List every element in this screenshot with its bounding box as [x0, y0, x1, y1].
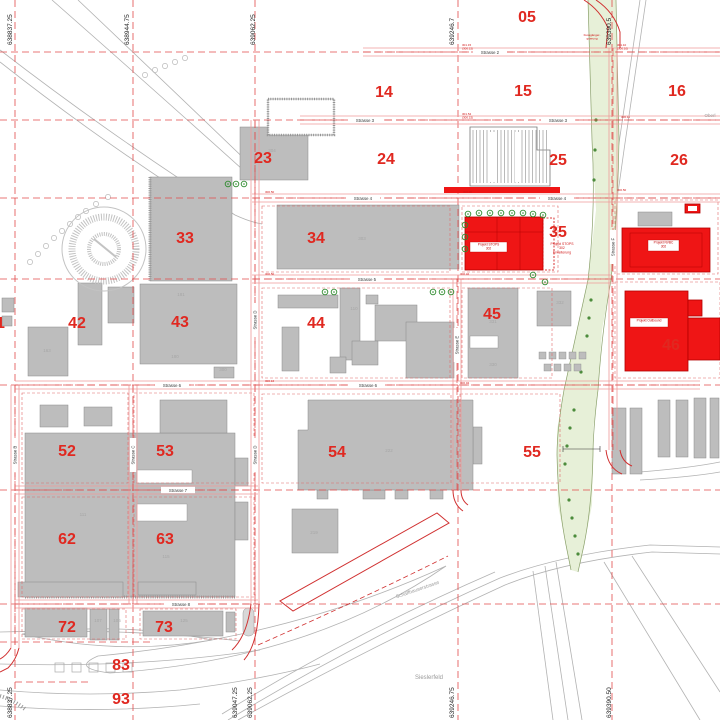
planted-tree-icon [243, 183, 245, 185]
project-outbound-building [625, 291, 688, 371]
sector-number: 25 [549, 152, 567, 169]
elevation-mark: 300.16 [265, 379, 275, 383]
existing-tree-icon [59, 228, 64, 233]
small-house [569, 352, 576, 359]
sector-number: 23 [254, 150, 272, 167]
sector-number: 53 [156, 443, 174, 460]
elevation-mark: (300.10) [617, 47, 628, 51]
sector-number: 34 [307, 230, 325, 247]
coordinate-label-bottom: 638837.25 [7, 687, 14, 718]
street-name-label: Strasse F [611, 237, 616, 256]
building [235, 502, 248, 540]
planted-tree-icon [432, 291, 434, 293]
building-number-label: 330 [489, 362, 497, 367]
building [235, 458, 248, 486]
sector-number: 83 [112, 657, 130, 674]
street-name-label: Strasse D [253, 446, 258, 465]
small-house [544, 364, 551, 371]
building [84, 407, 112, 426]
vegetation-dot [589, 298, 592, 301]
building [710, 398, 719, 458]
hatched-building [268, 99, 334, 135]
vegetation-dot [593, 148, 596, 151]
planted-tree-icon [333, 291, 335, 293]
building-number-label: 163 [43, 348, 51, 353]
project-outbound-building [688, 300, 702, 316]
planted-tree-icon [532, 213, 534, 215]
red-plan-line [461, 490, 468, 505]
building [160, 400, 227, 433]
elevation-mark: 300.90 [463, 190, 473, 194]
coordinate-label-bottom: 639390.50 [606, 687, 613, 718]
building [78, 283, 102, 345]
building-number-label: 222 [385, 448, 393, 453]
coordinate-label-top: 638837.25 [7, 14, 14, 45]
small-house [564, 364, 571, 371]
comb-building [470, 127, 550, 186]
building-number-label: 180 [171, 354, 179, 359]
building-number-label: 219 [310, 530, 318, 535]
planted-tree-icon [467, 213, 469, 215]
vegetation-dot [567, 498, 570, 501]
street-name-label: Strasse 3 [549, 118, 568, 123]
coordinate-label-top: 639390.5 [606, 18, 613, 45]
sector-number: 05 [518, 9, 536, 26]
project-outbound-building [688, 318, 720, 360]
building [537, 291, 571, 326]
building-number-label: 332 [556, 300, 564, 305]
small-house [574, 364, 581, 371]
building [395, 490, 408, 499]
street-name-label: Strasse D [253, 311, 258, 330]
red-plan-line [0, 648, 11, 659]
sector-number: 45 [483, 306, 501, 323]
project-stops-extension-label: Erweiterung [553, 250, 571, 254]
terrain-line [632, 556, 720, 692]
building [630, 408, 642, 474]
sector-number: 35 [549, 224, 567, 241]
vegetation-dot [573, 534, 576, 537]
street-name-label: Strasse 2 [481, 50, 500, 55]
sector-number: 52 [58, 443, 76, 460]
building [25, 608, 87, 637]
coordinate-label-bottom: 639047.25 [232, 687, 239, 718]
existing-tree-icon [35, 251, 40, 256]
vegetation-dot [565, 444, 568, 447]
sector-number: 63 [156, 531, 174, 548]
building-courtyard [137, 504, 187, 521]
planted-tree-icon [522, 212, 524, 214]
place-name-label: Oberl [704, 113, 715, 118]
planted-tree-icon [227, 183, 229, 185]
planted-tree-icon [464, 236, 466, 238]
comb-gap [490, 132, 496, 182]
small-red-structure-inner [688, 206, 697, 211]
planted-tree-icon [489, 212, 491, 214]
place-name-label: Sieslerfeld [415, 675, 443, 681]
sector-number: 93 [112, 691, 130, 708]
planted-tree-icon [450, 291, 452, 293]
coordinate-label-bottom: 639246.75 [449, 687, 456, 718]
building-number-label: 125 [180, 618, 188, 623]
sector-number: 16 [668, 83, 686, 100]
building [40, 405, 68, 427]
planted-tree-icon [532, 274, 534, 276]
building-number-label: 106 [113, 618, 121, 623]
terrain-line [238, 552, 720, 720]
building [90, 609, 107, 640]
street-name-label: Strasse 4 [548, 196, 567, 201]
building-number-label: 115 [162, 554, 170, 559]
building-number-label: 303 [358, 236, 366, 241]
terrain-line [604, 562, 700, 720]
building [473, 427, 482, 464]
building [363, 490, 385, 499]
building [282, 327, 299, 371]
street-name-label: Strasse 7 [169, 488, 188, 493]
vegetation-dot [563, 462, 566, 465]
sector-number: 24 [377, 151, 395, 168]
green-corridor-note: querung [586, 36, 597, 40]
small-house [554, 364, 561, 371]
sector-number: 33 [176, 230, 194, 247]
street-name-label: Strasse 6 [359, 383, 378, 388]
building [352, 341, 378, 365]
vegetation-dot [568, 426, 571, 429]
project-nvbc-label: 302 [661, 245, 667, 249]
sector-number: 43 [171, 314, 189, 331]
planted-tree-icon [542, 214, 544, 216]
red-plan-line [258, 556, 448, 645]
building [138, 582, 196, 595]
terrain-line [228, 545, 720, 720]
building [366, 295, 378, 304]
building [658, 400, 670, 457]
small-house [559, 352, 566, 359]
terrain-line [640, 472, 720, 480]
building [330, 357, 346, 373]
coordinate-label-top: 638944.75 [124, 14, 131, 45]
planted-tree-icon [441, 291, 443, 293]
building [278, 295, 338, 308]
building [317, 490, 328, 499]
elevation-mark: (300.15) [462, 116, 473, 120]
street-name-label: Strasse B [13, 446, 18, 465]
comb-gap [515, 132, 521, 182]
vegetation-dot [572, 408, 575, 411]
planted-tree-icon [511, 212, 513, 214]
existing-tree-icon [93, 201, 98, 206]
coordinate-label-top: 639246.7 [449, 18, 456, 45]
existing-tree-icon [51, 235, 56, 240]
elevation-mark: 300.50 [265, 272, 275, 276]
small-house [579, 352, 586, 359]
planted-tree-icon [235, 183, 237, 185]
street-name-label: Strasse 6 [163, 383, 182, 388]
sector-number: 46 [662, 337, 680, 354]
sector-number: 73 [155, 619, 173, 636]
building [109, 609, 119, 640]
vegetation-dot [576, 552, 579, 555]
existing-tree-icon [43, 243, 48, 248]
coordinate-label-top: 639062.25 [250, 14, 257, 45]
building [2, 298, 14, 312]
building [406, 322, 454, 378]
building [612, 408, 626, 474]
sector-number: 55 [523, 444, 541, 461]
street-name-label: Strasse 8 [172, 602, 191, 607]
sector-number: 42 [68, 315, 86, 332]
vegetation-dot [570, 516, 573, 519]
building-number-label: 300 [219, 367, 227, 372]
planted-tree-icon [478, 212, 480, 214]
street-name-label: Strasse E [455, 336, 460, 355]
elevation-mark: 300.42 [460, 272, 470, 276]
sector-number: 26 [670, 152, 688, 169]
existing-tree-icon [172, 59, 177, 64]
existing-tree-icon [142, 72, 147, 77]
existing-tree-icon [27, 259, 32, 264]
red-plan-line [0, 648, 19, 672]
street-name-label: Strasse 3 [356, 118, 375, 123]
planted-tree-icon [500, 212, 502, 214]
building [18, 582, 123, 597]
building-number-label: 111 [80, 512, 87, 517]
building [430, 490, 443, 499]
terrain-line [52, 0, 252, 178]
vegetation-dot [585, 334, 588, 337]
building-number-label: 110 [350, 306, 358, 311]
terrain-line [533, 571, 553, 720]
planned-road-strip [444, 187, 560, 193]
terrain-line [78, 0, 258, 172]
elevation-mark: (300.15) [462, 47, 473, 51]
place-name-label: Schaffhauserstrasse [395, 580, 440, 601]
vegetation-dot [592, 178, 595, 181]
building-number-label: 181 [177, 292, 185, 297]
sector-number: 41 [0, 315, 5, 332]
project-stops-label: 302 [486, 247, 492, 251]
existing-tree-icon [162, 63, 167, 68]
building [638, 212, 672, 226]
elevation-mark: 300.04 [460, 381, 470, 385]
project-outbound-label: Projekt Outbound [637, 319, 662, 323]
building [226, 612, 235, 632]
planted-tree-icon [464, 224, 466, 226]
elevation-mark: 300.50 [617, 188, 627, 192]
elevation-mark: 300.11 [621, 115, 630, 119]
planted-tree-icon [324, 291, 326, 293]
building-courtyard [470, 336, 498, 348]
sector-number: 44 [307, 315, 325, 332]
sector-number: 62 [58, 531, 76, 548]
existing-tree-icon [182, 55, 187, 60]
planted-tree-icon [464, 248, 466, 250]
building [277, 205, 459, 269]
coordinate-label-bottom: 639062.25 [247, 687, 254, 718]
building-courtyard [137, 470, 192, 483]
site-plan-page: 3043031811803001631103313303321111152222… [0, 0, 720, 720]
terrain-line [0, 704, 200, 710]
existing-tree-icon [105, 194, 110, 199]
sector-number: 72 [58, 619, 76, 636]
street-name-label: Strasse 4 [354, 196, 373, 201]
elevation-mark: 300.50 [265, 190, 275, 194]
building [694, 398, 706, 458]
terrain-line [556, 562, 582, 720]
terrain-line [545, 566, 568, 720]
site-plan-map: 3043031811803001631103313303321111152222… [0, 0, 720, 720]
sector-number: 54 [328, 444, 346, 461]
small-house [549, 352, 556, 359]
building [108, 287, 134, 323]
street-name-label: Strasse C [131, 446, 136, 465]
vegetation-dot [587, 316, 590, 319]
building-54 [298, 400, 473, 490]
green-corridor-layer [557, 0, 619, 572]
small-house [539, 352, 546, 359]
terrain-line [640, 462, 720, 472]
sector-number: 15 [514, 83, 532, 100]
street-name-label: Strasse 5 [358, 277, 377, 282]
building [676, 400, 688, 457]
existing-tree-icon [152, 67, 157, 72]
building-number-label: 107 [94, 618, 102, 623]
planted-tree-icon [544, 281, 546, 283]
building [150, 177, 232, 281]
sector-number: 14 [375, 84, 393, 101]
